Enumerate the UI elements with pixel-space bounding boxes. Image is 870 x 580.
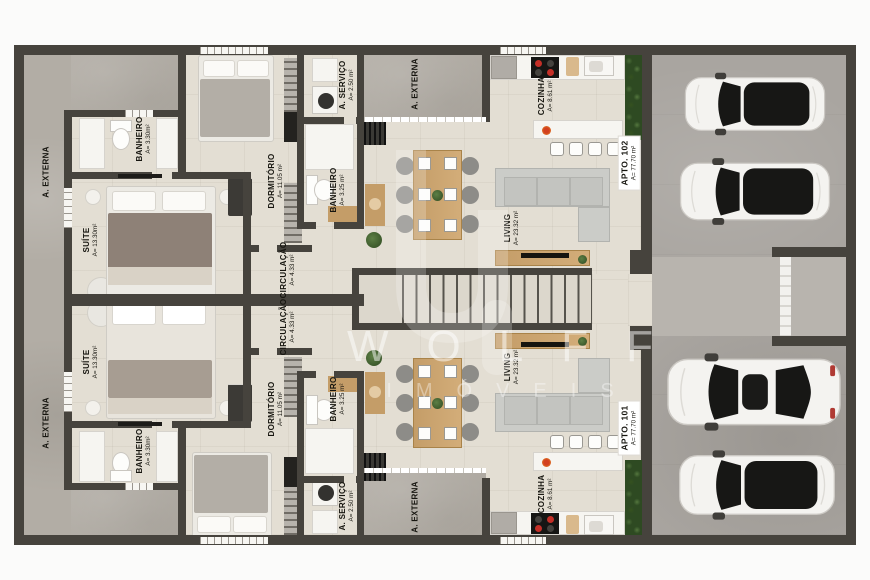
room-label-dormitorio-top: DORMITÓRIOA= 11.05 m² — [268, 154, 284, 209]
stool — [550, 142, 564, 156]
fridge-top — [491, 56, 517, 79]
window-bottom-dormitorio — [200, 537, 268, 544]
dining-chair — [461, 157, 479, 175]
wall-suite-left-top-a — [64, 110, 72, 188]
wall-stub-street-top — [772, 247, 846, 257]
placemat — [444, 219, 457, 232]
shower-bath2-top — [305, 124, 354, 170]
decor-bowl — [369, 386, 381, 398]
wall-stub-corridor-top — [630, 250, 652, 274]
room-area: A= 13.30m² — [92, 346, 99, 379]
fridge-bottom — [491, 512, 517, 534]
room-area: A= 4.33 m² — [289, 299, 296, 356]
room-name: A. EXTERNA — [43, 397, 52, 448]
room-label-cozinha-top: COZINHAA= 8.61 m² — [538, 77, 554, 116]
stool — [588, 435, 602, 449]
blanket — [108, 360, 212, 398]
corridor-floor — [628, 274, 652, 326]
shower-bath2-bottom — [305, 428, 354, 474]
car-top-view — [678, 155, 832, 228]
sink-bottom — [584, 515, 614, 535]
room-area: A= 3.25 m² — [339, 167, 346, 212]
room-area: A= 3.30m² — [145, 428, 152, 473]
room-label-banheiro-suite-top: BANHEIROA= 3.30m² — [136, 116, 152, 161]
duct-shaft-bottom — [364, 453, 386, 481]
plant-circulation-top — [366, 232, 382, 248]
wall-bath2-top-bottom-a — [297, 371, 316, 378]
tv-screen — [521, 342, 569, 347]
side-table-suite-bottom-left — [85, 400, 101, 416]
wall-dorm-circ-top-a — [251, 245, 259, 252]
stool — [569, 435, 583, 449]
sink-top — [584, 56, 614, 76]
sofa-cushion — [504, 396, 537, 425]
room-label-banheiro2-top: BANHEIROA= 3.25 m² — [330, 167, 346, 212]
room-area: A= 11.05 m² — [277, 154, 284, 209]
stool — [569, 142, 583, 156]
pillow — [203, 60, 235, 77]
pedestrian-gate — [780, 257, 791, 336]
wall-stub-corridor-bottom — [630, 326, 652, 350]
room-label-living-bottom: LIVINGA= 23.32 m² — [504, 350, 520, 384]
sofa-top — [495, 168, 610, 207]
room-name: A. SERVIÇO — [339, 60, 348, 109]
window-bottom-kitchen — [500, 537, 546, 544]
sideboard-plant — [578, 255, 587, 264]
pillow — [233, 516, 267, 533]
pillow — [162, 191, 206, 211]
dining-chair — [461, 215, 479, 233]
placemat — [418, 188, 431, 201]
wall-bath2-right-top — [357, 55, 364, 229]
sofa-cushion — [570, 177, 603, 206]
pillow — [112, 303, 156, 325]
room-label-circulacao-top: CIRCULAÇÃOA= 4.33 m² — [280, 242, 296, 299]
garage-entry-walkway — [652, 257, 846, 336]
room-name: BANHEIRO — [330, 376, 339, 421]
room-label-servico-top: A. SERVIÇOA= 2.50 m² — [339, 60, 355, 109]
sofa-chaise-bottom — [578, 358, 610, 393]
room-name: A. SERVIÇO — [339, 481, 348, 530]
placemat — [444, 157, 457, 170]
room-area: A= 4.33 m² — [289, 242, 296, 299]
room-name: BANHEIRO — [136, 428, 145, 473]
dining-chair — [396, 365, 414, 383]
shower-suite-bottom — [79, 431, 105, 482]
placemat — [418, 365, 431, 378]
burner — [547, 516, 554, 523]
dining-chair — [396, 215, 414, 233]
wall-bath2-bottom-top-a — [297, 222, 316, 229]
stair-wall-bottom — [352, 323, 592, 330]
room-label-living-top: LIVINGA= 23.32 m² — [504, 211, 520, 245]
car-top-view — [683, 70, 827, 138]
room-name: SUÍTE — [83, 224, 92, 257]
room-label-a-externa-left-bottom: A. EXTERNA — [43, 397, 52, 448]
toilet-suite-bottom — [110, 470, 132, 482]
stair-wall-top — [352, 268, 592, 275]
room-label-banheiro2-bottom: BANHEIROA= 3.25 m² — [330, 376, 346, 421]
blanket — [200, 79, 270, 137]
burner — [535, 60, 542, 67]
dining-chair — [461, 365, 479, 383]
sofa-cushion — [537, 396, 570, 425]
stair-wall-left — [352, 268, 359, 330]
bed-suite-bottom — [106, 297, 216, 419]
burner — [535, 516, 542, 523]
cutting-board-top — [566, 57, 579, 76]
vanity-suite-top — [156, 118, 178, 169]
washer-door — [318, 93, 334, 109]
sofa-chaise-top — [578, 207, 610, 242]
flower-decor — [542, 126, 551, 135]
stove-top — [531, 57, 559, 78]
window-suite-bath-bottom — [125, 483, 153, 490]
room-area: A= 13.30m² — [92, 224, 99, 257]
room-area: A= 3.30m² — [145, 116, 152, 161]
cutting-board-bottom — [566, 515, 579, 534]
dining-chair — [461, 423, 479, 441]
room-label-cozinha-bottom: COZINHAA= 8.61 m² — [538, 475, 554, 514]
room-name: CIRCULAÇÃO — [280, 299, 289, 356]
table-plant — [432, 398, 443, 409]
stool — [550, 435, 564, 449]
window-top-dormitorio — [200, 47, 268, 54]
room-label-circulacao-bottom: CIRCULAÇÃOA= 4.33 m² — [280, 299, 296, 356]
sofa-cushion — [504, 177, 537, 206]
wall-ext-mid-right-bottom — [482, 478, 490, 535]
room-area: A= 3.25 m² — [339, 376, 346, 421]
tv-panel-suite-top — [118, 174, 162, 178]
toilet-bowl-suite-top — [112, 128, 130, 150]
room-label-a-externa-mid-top: A. EXTERNA — [412, 58, 421, 109]
room-name: COZINHA — [538, 475, 547, 514]
placemat — [444, 188, 457, 201]
outer-wall-right — [846, 45, 856, 545]
room-area: A= 23.32 m² — [513, 211, 520, 245]
burner — [535, 69, 542, 76]
pillow — [237, 60, 269, 77]
room-area: A= 8.61 m² — [547, 475, 554, 514]
outer-wall-top — [14, 45, 856, 55]
placemat — [444, 427, 457, 440]
room-area: A= 8.61 m² — [547, 77, 554, 116]
hedge-bottom — [625, 460, 642, 535]
wall-dorm-left-bottom — [178, 421, 186, 535]
room-name: DORMITÓRIO — [268, 154, 277, 209]
tv-screen — [521, 253, 569, 258]
wall-stub-street-bottom — [772, 336, 846, 346]
burner — [547, 525, 554, 532]
placemat — [444, 396, 457, 409]
car-top-view — [665, 352, 843, 432]
room-label-a-externa-mid-bottom: A. EXTERNA — [412, 481, 421, 532]
wall-garage-divider-top — [641, 55, 652, 250]
wall-garage-divider-bottom — [641, 350, 652, 535]
placemat — [418, 427, 431, 440]
wall-dorm-circ-bottom-a — [251, 348, 259, 355]
dining-table-bottom — [413, 358, 462, 448]
sofa-cushion — [570, 396, 603, 425]
burner — [535, 525, 542, 532]
room-name: A. EXTERNA — [43, 146, 52, 197]
room-label-servico-bottom: A. SERVIÇOA= 2.50 m² — [339, 481, 355, 530]
apartment-label-101: APTO. 101A= 77.70 m² — [619, 401, 640, 454]
bed-dormitorio-bottom — [192, 452, 272, 538]
pillow — [112, 191, 156, 211]
apartment-name: APTO. 102 — [621, 140, 631, 185]
dining-chair — [461, 394, 479, 412]
placemat — [418, 396, 431, 409]
wall-ext-mid-right-top — [482, 55, 490, 122]
wall-service-bath2-top-a — [304, 117, 344, 124]
room-name: A. EXTERNA — [412, 58, 421, 109]
tv-sideboard-top — [495, 250, 590, 266]
dining-chair — [396, 186, 414, 204]
wall-suite-right-bottom — [243, 294, 251, 428]
burner — [547, 69, 554, 76]
room-name: SUÍTE — [83, 346, 92, 379]
stair-treads — [402, 275, 592, 323]
burner — [547, 60, 554, 67]
wall-suite-left-bottom-b — [64, 412, 72, 490]
sideboard-plant — [578, 337, 587, 346]
room-label-suite-bottom: SUÍTEA= 13.30m² — [83, 346, 99, 379]
plant-circulation-bottom — [366, 350, 382, 366]
flower-decor — [542, 458, 551, 467]
console-living-top — [365, 184, 385, 226]
room-label-a-externa-left-top: A. EXTERNA — [43, 146, 52, 197]
kitchen-island-top — [533, 120, 623, 139]
dining-chair — [396, 394, 414, 412]
hedge-top — [625, 55, 642, 140]
apartment-label-102: APTO. 102A= 77.70 m² — [619, 136, 640, 189]
external-area-bottom-left-strip — [71, 483, 182, 535]
console-living-bottom — [365, 372, 385, 414]
wall-mirror-middle — [64, 294, 364, 306]
room-area: A= 23.32 m² — [513, 350, 520, 384]
room-name: LIVING — [504, 350, 513, 384]
dining-table-top — [413, 150, 462, 240]
outer-wall-bottom — [14, 535, 856, 545]
tv-panel-suite-bottom — [118, 422, 162, 426]
room-label-banheiro-suite-bottom: BANHEIROA= 3.30m² — [136, 428, 152, 473]
side-table-suite-top-left — [85, 189, 101, 205]
room-label-dormitorio-bottom: DORMITÓRIOA= 11.05 m² — [268, 382, 284, 437]
table-plant — [432, 190, 443, 201]
toilet-bath2-bottom — [306, 395, 318, 425]
bed-throw — [108, 398, 212, 414]
kitchen-island-bottom — [533, 452, 623, 471]
room-area: A= 11.05 m² — [277, 382, 284, 437]
stool — [588, 142, 602, 156]
placemat — [418, 219, 431, 232]
room-label-suite-top: SUÍTEA= 13.30m² — [83, 224, 99, 257]
car-top-view — [677, 447, 837, 523]
dining-chair — [396, 423, 414, 441]
sofa-bottom — [495, 393, 610, 432]
apartment-name: APTO. 101 — [621, 405, 631, 450]
apartment-area: A= 77.70 m² — [630, 140, 637, 185]
apartment-area: A= 77.70 m² — [630, 405, 637, 450]
dining-chair — [461, 186, 479, 204]
railing-ext-mid-top — [364, 117, 486, 122]
outer-wall-left — [14, 45, 24, 545]
wall-bath2-right-bottom — [357, 371, 364, 535]
room-name: BANHEIRO — [330, 167, 339, 212]
bed-throw — [108, 267, 212, 285]
blanket — [194, 455, 268, 513]
room-name: BANHEIRO — [136, 116, 145, 161]
wall-suite-right-top — [243, 172, 251, 306]
decor-bowl — [369, 198, 381, 210]
vanity-suite-bottom — [156, 431, 178, 482]
laundry-tank-bottom — [312, 510, 338, 534]
room-name: COZINHA — [538, 77, 547, 116]
placemat — [418, 157, 431, 170]
wall-dorm-left-top — [178, 55, 186, 179]
bed-suite-top — [106, 186, 216, 305]
wall-service-left-top — [297, 55, 304, 229]
window-suite-left-bottom — [64, 372, 72, 412]
stove-bottom — [531, 513, 559, 534]
tv-sideboard-bottom — [495, 333, 590, 349]
room-area: A= 2.50 m² — [348, 60, 355, 109]
laundry-tank-top — [312, 58, 338, 82]
placemat — [444, 365, 457, 378]
room-area: A= 2.50 m² — [348, 481, 355, 530]
sink-basin — [589, 61, 603, 72]
window-top-kitchen — [500, 47, 546, 54]
wall-service-left-bottom — [297, 371, 304, 535]
washer-top — [312, 86, 338, 114]
pillow — [197, 516, 231, 533]
window-suite-left-top — [64, 188, 72, 228]
room-name: DORMITÓRIO — [268, 382, 277, 437]
external-area-top-left-strip — [71, 55, 182, 112]
sofa-cushion — [537, 177, 570, 206]
dining-chair — [396, 157, 414, 175]
pillow — [162, 303, 206, 325]
external-area-top-middle — [364, 55, 486, 120]
railing-ext-mid-bottom — [364, 468, 486, 473]
shower-suite-top — [79, 118, 105, 169]
sink-basin — [589, 521, 603, 532]
room-name: LIVING — [504, 211, 513, 245]
wall-suite-left-bottom-a — [64, 294, 72, 372]
washer-door — [318, 485, 334, 501]
room-name: A. EXTERNA — [412, 481, 421, 532]
room-name: CIRCULAÇÃO — [280, 242, 289, 299]
bed-dormitorio-top — [198, 55, 274, 142]
